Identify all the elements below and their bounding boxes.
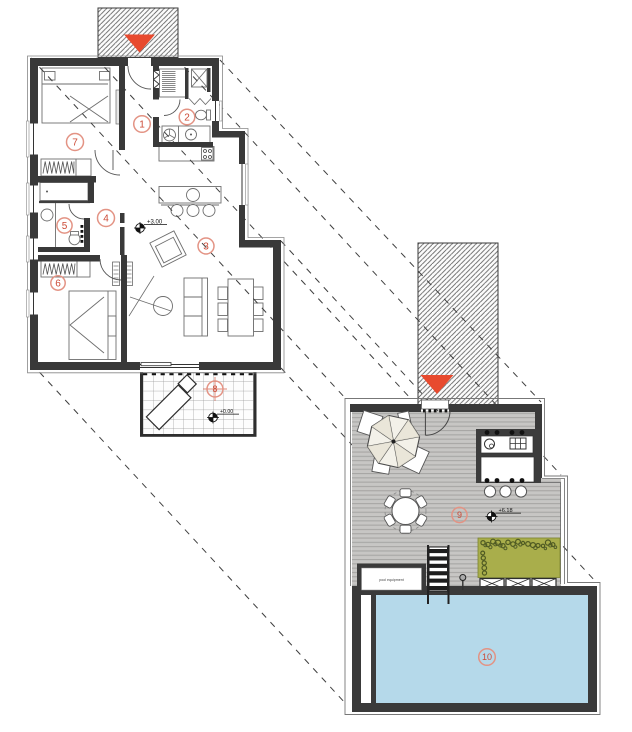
- svg-text:7: 7: [72, 138, 78, 149]
- svg-text:10: 10: [482, 652, 492, 662]
- svg-text:+0.00: +0.00: [220, 409, 233, 415]
- svg-text:5: 5: [62, 221, 68, 232]
- svg-text:pool equipment: pool equipment: [379, 578, 404, 582]
- svg-text:1: 1: [139, 120, 145, 131]
- svg-text:3: 3: [203, 242, 209, 253]
- svg-text:2: 2: [184, 113, 190, 124]
- svg-text:8: 8: [212, 384, 217, 394]
- svg-text:+6.18: +6.18: [499, 508, 513, 514]
- svg-text:9: 9: [457, 510, 462, 520]
- svg-text:4: 4: [103, 214, 109, 225]
- svg-text:6: 6: [55, 279, 61, 290]
- svg-text:+3.00: +3.00: [147, 219, 163, 225]
